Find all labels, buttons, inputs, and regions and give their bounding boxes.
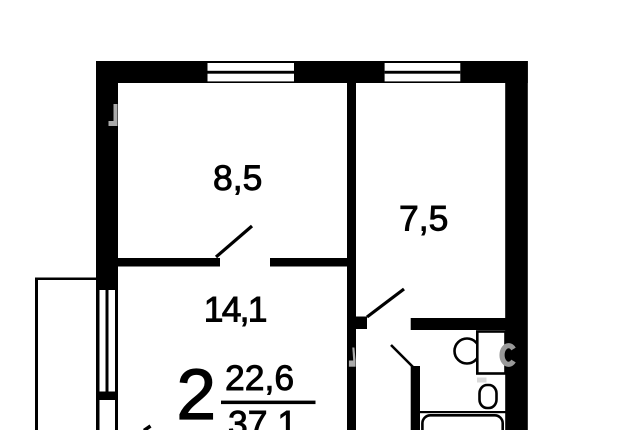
svg-text:14,1: 14,1	[204, 289, 267, 329]
svg-text:7,5: 7,5	[399, 198, 448, 238]
svg-text:22,6: 22,6	[225, 358, 294, 398]
svg-text:2: 2	[177, 356, 217, 430]
svg-text:8,5: 8,5	[213, 158, 262, 198]
svg-text:37,1: 37,1	[228, 404, 297, 430]
